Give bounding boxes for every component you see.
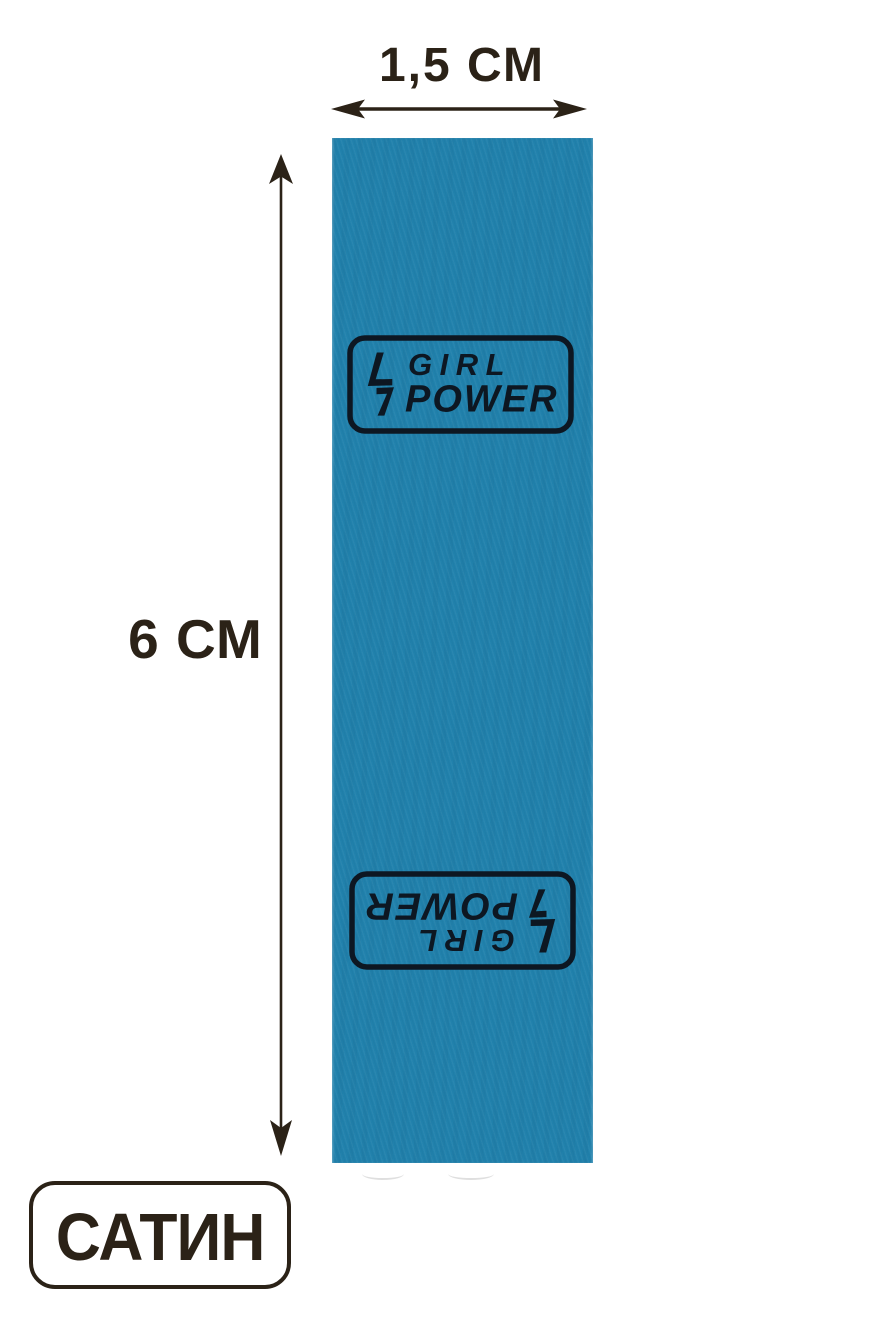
svg-text:POWER: POWER bbox=[405, 379, 559, 421]
svg-text:GIRL: GIRL bbox=[411, 923, 515, 958]
svg-text:POWER: POWER bbox=[364, 885, 518, 927]
svg-text:GIRL: GIRL bbox=[408, 347, 512, 382]
